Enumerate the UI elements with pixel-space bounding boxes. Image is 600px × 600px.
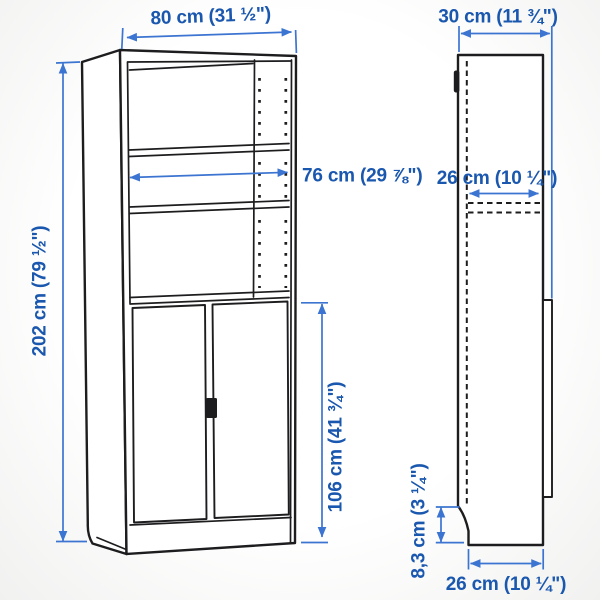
right-inner-stile: [291, 60, 292, 543]
hinge-mark: [454, 71, 460, 93]
top-panel-inner-edge: [128, 61, 291, 62]
dimension-label-door-height: 106 cm (41 ¾"): [326, 382, 347, 513]
dimension-height: 202 cm (79 ½"): [30, 62, 88, 542]
door-left: [133, 305, 207, 523]
product-dimension-diagram: 80 cm (31 ½") 202 cm (79 ½") 76 cm (29 ⅞…: [0, 0, 600, 600]
extension-line: [296, 30, 297, 53]
dimension-label-bottom-depth: 26 cm (10 ¼"): [446, 574, 566, 595]
front-view: [82, 50, 296, 554]
dimension-label-plinth-height: 8,3 cm (3 ¼"): [409, 463, 430, 578]
dimension-width-top: 80 cm (31 ½"): [122, 4, 297, 53]
door-right: [213, 302, 289, 519]
dimension-label-width: 80 cm (31 ½"): [150, 4, 271, 30]
door-handle: [206, 398, 217, 418]
door-side-profile: [543, 300, 552, 497]
dimension-arrow: [127, 32, 292, 38]
dimension-plinth-height: 8,3 cm (3 ¼"): [409, 463, 465, 578]
dimension-label-inner-width: 76 cm (29 ⅞"): [302, 166, 422, 187]
dimension-label-depth: 30 cm (11 ¾"): [438, 7, 557, 28]
right-panel-inner-face-edge: [254, 60, 255, 297]
dimension-label-height: 202 cm (79 ½"): [30, 226, 51, 357]
tick-line: [56, 62, 80, 63]
dimension-label-inner-depth: 26 cm (10 ¼"): [437, 168, 557, 189]
bookcase-dimension-drawing: 80 cm (31 ½") 202 cm (79 ½") 76 cm (29 ⅞…: [0, 0, 600, 600]
side-view: [454, 55, 552, 545]
side-view-outline: [458, 55, 543, 545]
dimension-door-height: 106 cm (41 ¾"): [301, 303, 347, 543]
dimension-bottom-depth: 26 cm (10 ¼"): [446, 549, 566, 595]
extension-line: [122, 28, 123, 49]
